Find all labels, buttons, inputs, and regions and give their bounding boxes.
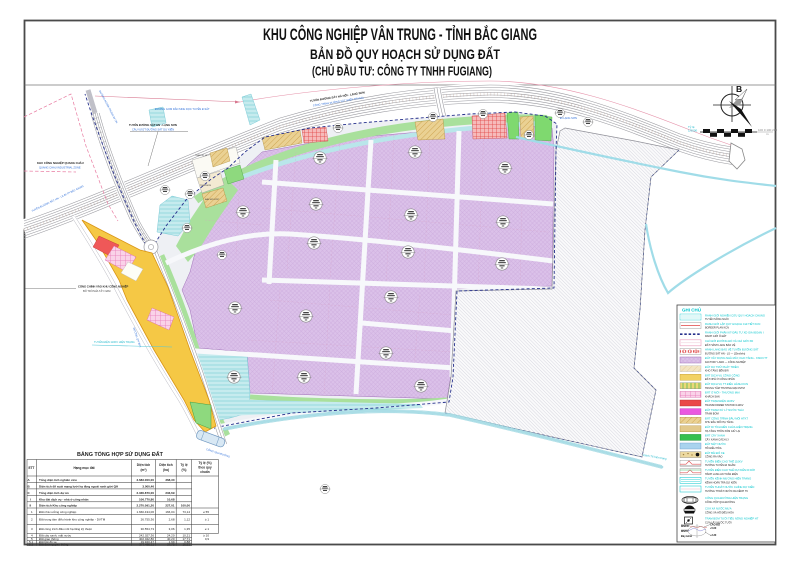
svg-text:Đất nhà xưởng công nghiệp: Đất nhà xưởng công nghiệp [39,510,77,514]
svg-text:ĐI LẠNG SƠN: ĐI LẠNG SƠN [560,116,577,120]
svg-text:1.660.434,06: 1.660.434,06 [136,510,154,514]
svg-text:Đáy kênh: Đáy kênh [681,535,693,538]
svg-text:73,14: 73,14 [182,510,190,514]
svg-text:5.2: 5.2 [29,542,34,546]
svg-text:0,9: 0,9 [205,537,210,541]
svg-text:16,63: 16,63 [182,542,190,546]
svg-text:1,12: 1,12 [184,518,190,522]
svg-text:2,68: 2,68 [169,518,175,522]
svg-text:ĐẦU MỐI HTKT: ĐẦU MỐI HTKT [205,198,220,201]
svg-text:368,30: 368,30 [165,478,175,482]
svg-text:30.554,73: 30.554,73 [141,527,155,531]
svg-text:(m²): (m²) [140,468,146,472]
svg-text:ETT: ETT [28,466,34,470]
svg-text:RANH GIỚI Ô ĐẤT: RANH GIỚI Ô ĐẤT [705,335,727,338]
svg-text:3.000,46: 3.000,46 [142,484,154,488]
svg-text:TUYẾN SÔNG NGÒI: TUYẾN SÔNG NGÒI [705,318,729,321]
svg-text:QUANG CHAU INDUSTRIAL ZONE: QUANG CHAU INDUSTRIAL ZONE [39,166,81,170]
svg-text:377.480,11: 377.480,11 [139,542,154,546]
svg-text:227,01: 227,01 [165,504,175,508]
svg-text:HỒ ĐIỀU HÒA: HỒ ĐIỀU HÒA [705,447,722,450]
svg-text:37,75: 37,75 [167,542,175,546]
svg-text:TRANSFORMER STATION 110KV: TRANSFORMER STATION 110KV [705,404,744,407]
svg-text:≥ 55: ≥ 55 [203,510,209,514]
svg-text:10,68: 10,68 [167,497,175,501]
svg-text:3.683.000,00: 3.683.000,00 [136,478,154,482]
svg-text:BẢNG TỔNG HỢP SỬ DỤNG ĐẤT: BẢNG TỔNG HỢP SỬ DỤNG ĐẤT [77,451,164,458]
svg-text:Tỷ lệ: Tỷ lệ [180,463,187,467]
svg-text:(ha): (ha) [163,468,169,472]
svg-text:2.336.870,00: 2.336.870,00 [136,491,154,495]
svg-text:≥ 1: ≥ 1 [205,518,209,522]
svg-text:BẢN ĐỒ QUY HOẠCH SỬ DỤNG ĐẤT: BẢN ĐỒ QUY HOẠCH SỬ DỤNG ĐẤT [310,45,500,62]
svg-text:TRUNG TÂM THƯƠNG MẠI DVTM: TRUNG TÂM THƯƠNG MẠI DVTM [705,387,745,390]
svg-text:HẠ TẦNG THÔN XÓM GIỮ LẠI: HẠ TẦNG THÔN XÓM GIỮ LẠI [705,430,740,433]
svg-text:FACTORY LAND — CÔNG NGHIỆP: FACTORY LAND — CÔNG NGHIỆP [705,361,746,364]
svg-text:(%): (%) [182,468,187,472]
svg-text:Tổng diện tích dự án: Tổng diện tích dự án [39,491,69,495]
svg-text:Đất đường giao thông: Đất đường giao thông [39,542,69,546]
svg-text:(CHỦ ĐẦU TƯ: CÔNG TY TNHH FUGI: (CHỦ ĐẦU TƯ: CÔNG TY TNHH FUGIANG) [312,64,492,79]
svg-text:106.770,80: 106.770,80 [139,497,154,501]
svg-text:CỔNG RA VÀO: CỔNG RA VÀO [705,456,723,459]
svg-text:TRẠM XỬ LÝ: TRẠM XỬ LÝ [195,154,208,157]
svg-text:CỐNG HỘP QUA ĐƯỜNG: CỐNG HỘP QUA ĐƯỜNG [705,501,735,504]
svg-text:+2.30: +2.30 [710,534,717,537]
svg-text:BORDER PLAN KCN: BORDER PLAN KCN [705,327,729,330]
svg-text:166,04: 166,04 [165,510,175,514]
svg-text:KHU CÔNG NGHIỆP QUANG CHÂU: KHU CÔNG NGHIỆP QUANG CHÂU [37,160,84,165]
svg-text:ĐẤT NHÀ Ở CÔNG NHÂN: ĐẤT NHÀ Ở CÔNG NHÂN [705,378,735,381]
svg-text:II: II [30,504,32,508]
svg-text:ĐƯỜNG SẮT HN - LS — (25m/bên): ĐƯỜNG SẮT HN - LS — (25m/bên) [705,352,745,355]
svg-text:233,69: 233,69 [165,491,175,495]
svg-text:Diện tích để xuất mạng lưới hạ: Diện tích để xuất mạng lưới hạ tầng ngoà… [39,484,118,488]
svg-text:KHU CÔNG NGHIỆP VÂN TRUNG - TỈ: KHU CÔNG NGHIỆP VÂN TRUNG - TỈNH BẮC GIA… [263,25,537,44]
svg-text:ĐẤT XÂY DỰNG NHÀ MÁY, KHO TÀNG: ĐẤT XÂY DỰNG NHÀ MÁY, KHO TÀNG - XNCN TT [705,356,768,360]
svg-text:Khu đất dịch vụ - nhà ở công n: Khu đất dịch vụ - nhà ở công nhân [39,497,89,501]
svg-text:Đất trung tâm điều hành khu cô: Đất trung tâm điều hành khu công nghiệp … [39,518,106,522]
svg-text:Đất công trình đầu mối hạ tầng: Đất công trình đầu mối hạ tầng kỹ thuật [39,527,92,531]
svg-text:KÊNH HOÀN TRẢ DỰ KIẾN: KÊNH HOÀN TRẢ DỰ KIẾN [705,481,737,484]
svg-text:KHU ĐẦU MỐI HẠ TẦNG: KHU ĐẦU MỐI HẠ TẦNG [705,421,733,424]
svg-text:CỐNG XẢ HỒ ĐIỀU HÒA: CỐNG XẢ HỒ ĐIỀU HÒA [705,511,734,514]
svg-text:26.755,36: 26.755,36 [141,518,155,522]
svg-text:Diện tích: Diện tích [159,463,173,467]
svg-text:2.270.091,20: 2.270.091,20 [136,504,154,508]
svg-text:+5.60: +5.60 [710,527,717,530]
svg-text:ĐẤT CÂY XANH: ĐẤT CÂY XANH [705,434,725,438]
svg-text:100,00: 100,00 [181,504,191,508]
svg-text:ĐẤT HÀNH LANG BẢO VỆ: ĐẤT HÀNH LANG BẢO VỆ [705,344,736,347]
svg-text:1/5000: 1/5000 [688,129,698,133]
svg-text:3,06: 3,06 [169,527,175,531]
svg-text:GHI CHÚ: GHI CHÚ [682,307,701,313]
svg-text:KHO TÀNG BẾN BÃI: KHO TÀNG BẾN BÃI [705,370,729,373]
svg-text:TRẠM BƠM: TRẠM BƠM [705,413,719,416]
svg-text:Tỷ lệ (%): Tỷ lệ (%) [198,461,211,465]
svg-text:CÂY XANH CÁCH LY: CÂY XANH CÁCH LY [705,438,729,441]
svg-text:1,35: 1,35 [184,527,190,531]
svg-text:MNTK: MNTK [681,530,688,533]
svg-text:Tổng diện tích nghiên cứu: Tổng diện tích nghiên cứu [39,478,77,482]
svg-text:chuẩn: chuẩn [200,470,209,474]
svg-text:Diện tích: Diện tích [137,463,151,467]
svg-text:≥ 1: ≥ 1 [205,527,209,531]
svg-text:HƯỚNG TUYẾN ĐI NGẦM: HƯỚNG TUYẾN ĐI NGẦM [705,464,735,467]
svg-text:Diện tích Khu công nghiệp: Diện tích Khu công nghiệp [39,504,77,508]
svg-text:B: B [736,84,742,94]
svg-text:HƯỚNG THOÁT NƯỚC RA KÊNH T6: HƯỚNG THOÁT NƯỚC RA KÊNH T6 [705,490,748,493]
svg-text:HÀNH LANG AN TOÀN ĐIỆN: HÀNH LANG AN TOÀN ĐIỆN [705,473,738,476]
svg-text:KHÁCH SẠN: KHÁCH SẠN [705,395,720,398]
svg-text:theo quy: theo quy [198,466,212,470]
svg-text:Hạng mục đất: Hạng mục đất [73,466,95,470]
